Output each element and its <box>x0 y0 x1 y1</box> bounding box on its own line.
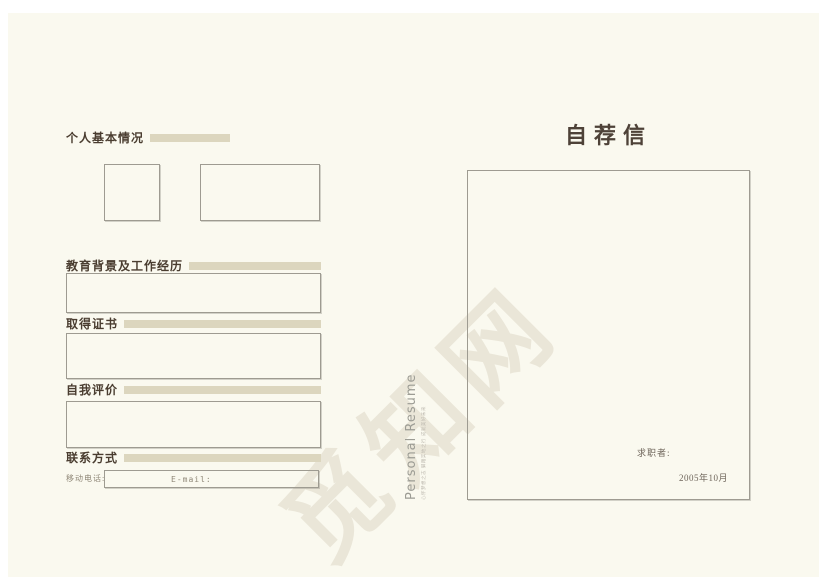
section-header-basic-info: 个人基本情况 <box>66 131 321 145</box>
cover-letter-placeholder-box <box>467 170 750 500</box>
spine-vertical-text: Personal Resume 心怀梦想之志 脚踏实地之行 成就美好未来 <box>404 405 437 500</box>
section-header-self-evaluation: 自我评价 <box>66 383 321 397</box>
section-title: 联系方式 <box>66 451 118 465</box>
self-evaluation-placeholder-box <box>66 401 321 448</box>
section-title: 个人基本情况 <box>66 131 144 145</box>
certificates-placeholder-box <box>66 333 321 379</box>
contact-placeholder-box: E-mail: <box>104 470 319 488</box>
section-title: 教育背景及工作经历 <box>66 259 183 273</box>
accent-bar <box>189 262 321 270</box>
email-label: E-mail: <box>171 475 212 484</box>
education-placeholder-box <box>66 273 321 313</box>
basic-info-placeholder-box <box>200 164 320 221</box>
applicant-label: 求职者: <box>637 446 671 459</box>
section-header-certificates: 取得证书 <box>66 317 321 331</box>
accent-bar <box>124 386 321 394</box>
mobile-phone-label: 移动电话: <box>66 473 105 484</box>
spine-tagline: 心怀梦想之志 脚踏实地之行 成就美好未来 <box>421 405 427 500</box>
photo-placeholder-box <box>104 164 160 221</box>
accent-bar <box>150 134 230 142</box>
section-title: 取得证书 <box>66 317 118 331</box>
resume-template-page: 觅知网 个人基本情况 教育背景及工作经历 取得证书 自我评价 联系方式 移动电话… <box>8 13 819 577</box>
section-header-education: 教育背景及工作经历 <box>66 259 321 273</box>
cover-letter-title: 自荐信 <box>467 118 750 150</box>
letter-date: 2005年10月 <box>679 471 728 484</box>
section-title: 自我评价 <box>66 383 118 397</box>
spine-title: Personal Resume <box>404 405 419 500</box>
section-header-contact: 联系方式 <box>66 451 321 465</box>
accent-bar <box>124 454 321 462</box>
accent-bar <box>124 320 321 328</box>
